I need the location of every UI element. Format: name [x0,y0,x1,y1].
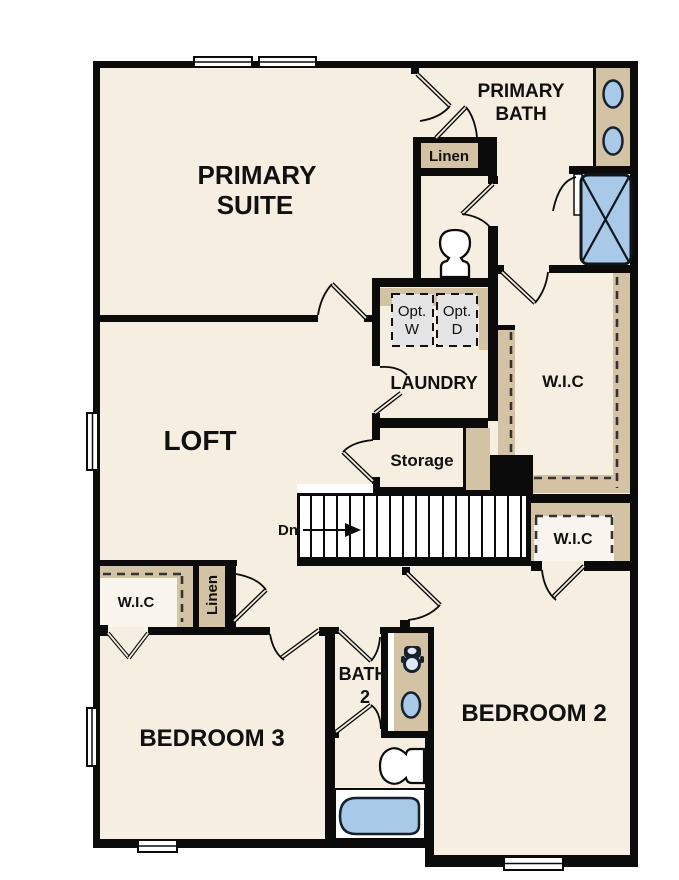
svg-text:PRIMARY: PRIMARY [478,81,565,102]
svg-text:LAUNDRY: LAUNDRY [390,373,477,393]
svg-text:SUITE: SUITE [217,190,294,220]
svg-text:W.I.C: W.I.C [553,531,593,548]
svg-text:PRIMARY: PRIMARY [198,160,317,190]
svg-text:BEDROOM 3: BEDROOM 3 [139,725,284,752]
svg-text:LOFT: LOFT [163,425,236,456]
svg-text:Dn: Dn [278,522,298,539]
svg-text:W.I.C: W.I.C [118,594,155,611]
svg-text:D: D [452,321,463,338]
svg-text:BATH: BATH [495,104,546,125]
svg-text:Linen: Linen [429,148,469,165]
svg-text:Linen: Linen [204,575,221,615]
svg-text:2: 2 [360,687,370,707]
svg-text:BEDROOM 2: BEDROOM 2 [461,700,606,727]
svg-text:BATH: BATH [339,664,388,684]
svg-text:Opt.: Opt. [443,303,471,320]
svg-text:Opt.: Opt. [398,303,426,320]
svg-text:W: W [405,321,420,338]
svg-text:W.I.C: W.I.C [542,372,584,391]
svg-text:Storage: Storage [390,451,453,470]
